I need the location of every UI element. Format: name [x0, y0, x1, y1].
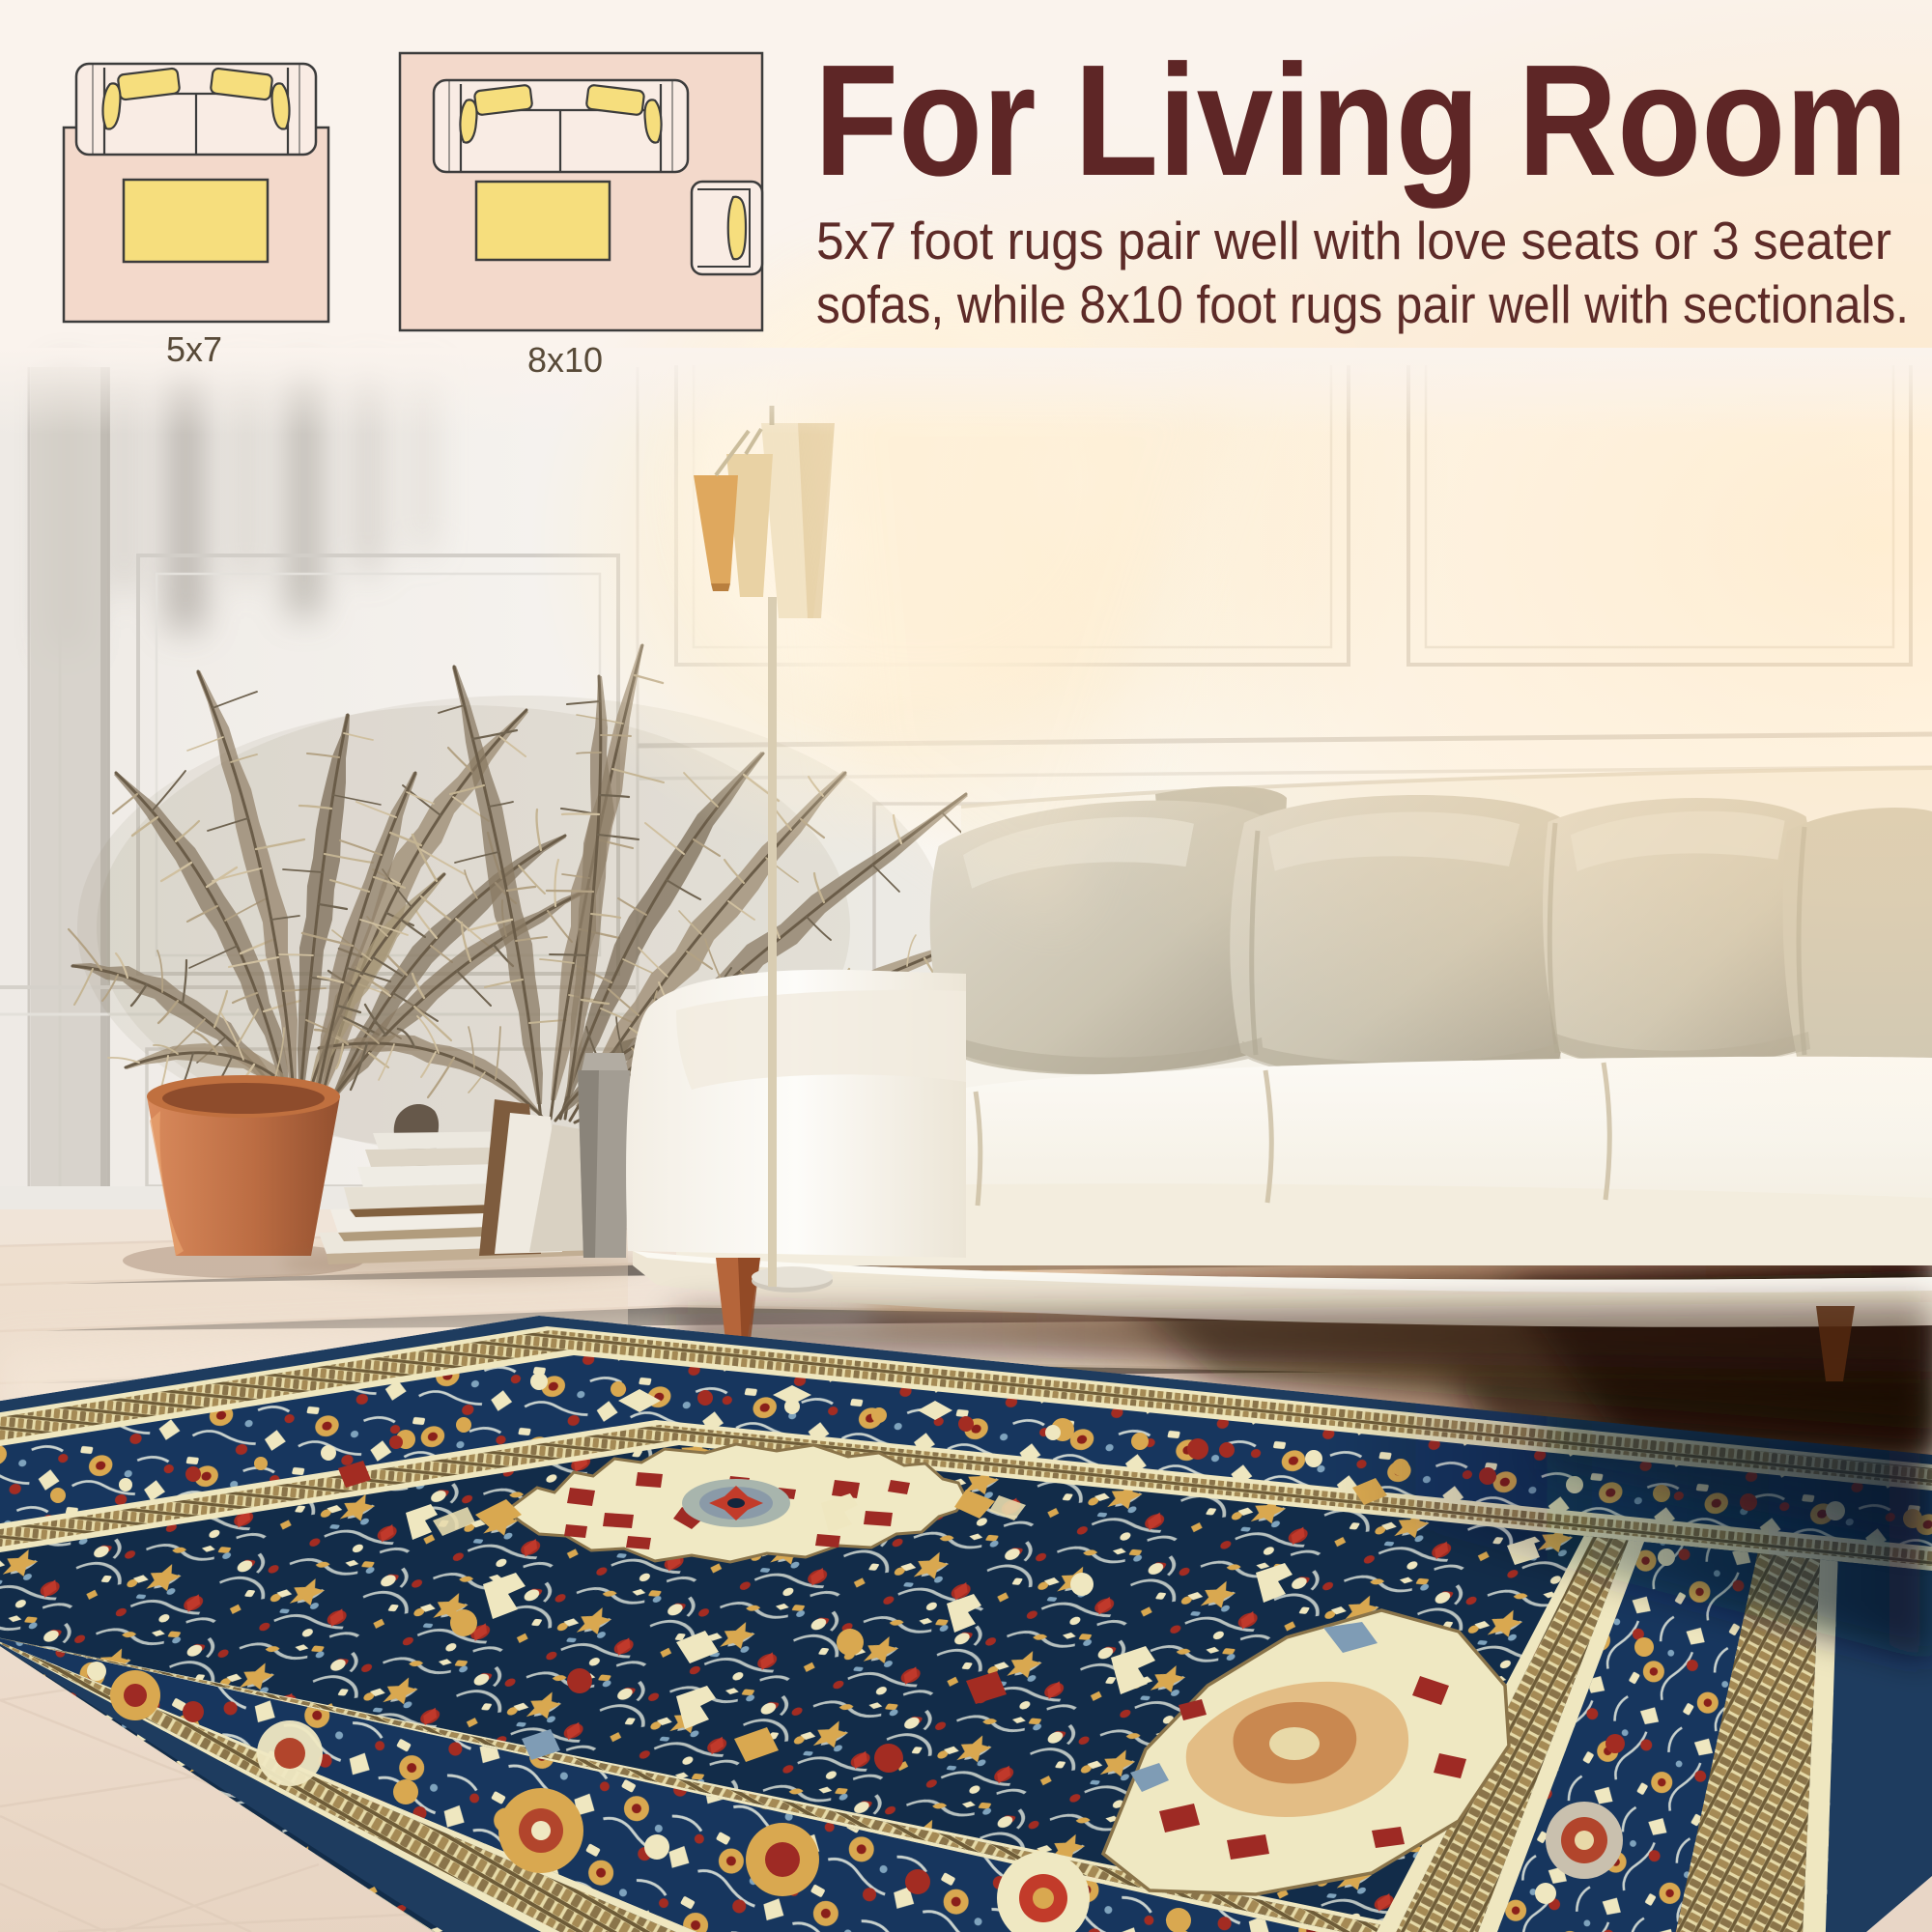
svg-text:For Living Room: For Living Room: [814, 32, 1908, 209]
svg-text:sofas, while 8x10 foot rugs pa: sofas, while 8x10 foot rugs pair well wi…: [816, 274, 1909, 334]
svg-text:5x7 foot rugs pair well with l: 5x7 foot rugs pair well with love seats …: [816, 211, 1891, 270]
svg-text:8x10: 8x10: [527, 340, 603, 380]
svg-text:5x7: 5x7: [166, 329, 222, 369]
